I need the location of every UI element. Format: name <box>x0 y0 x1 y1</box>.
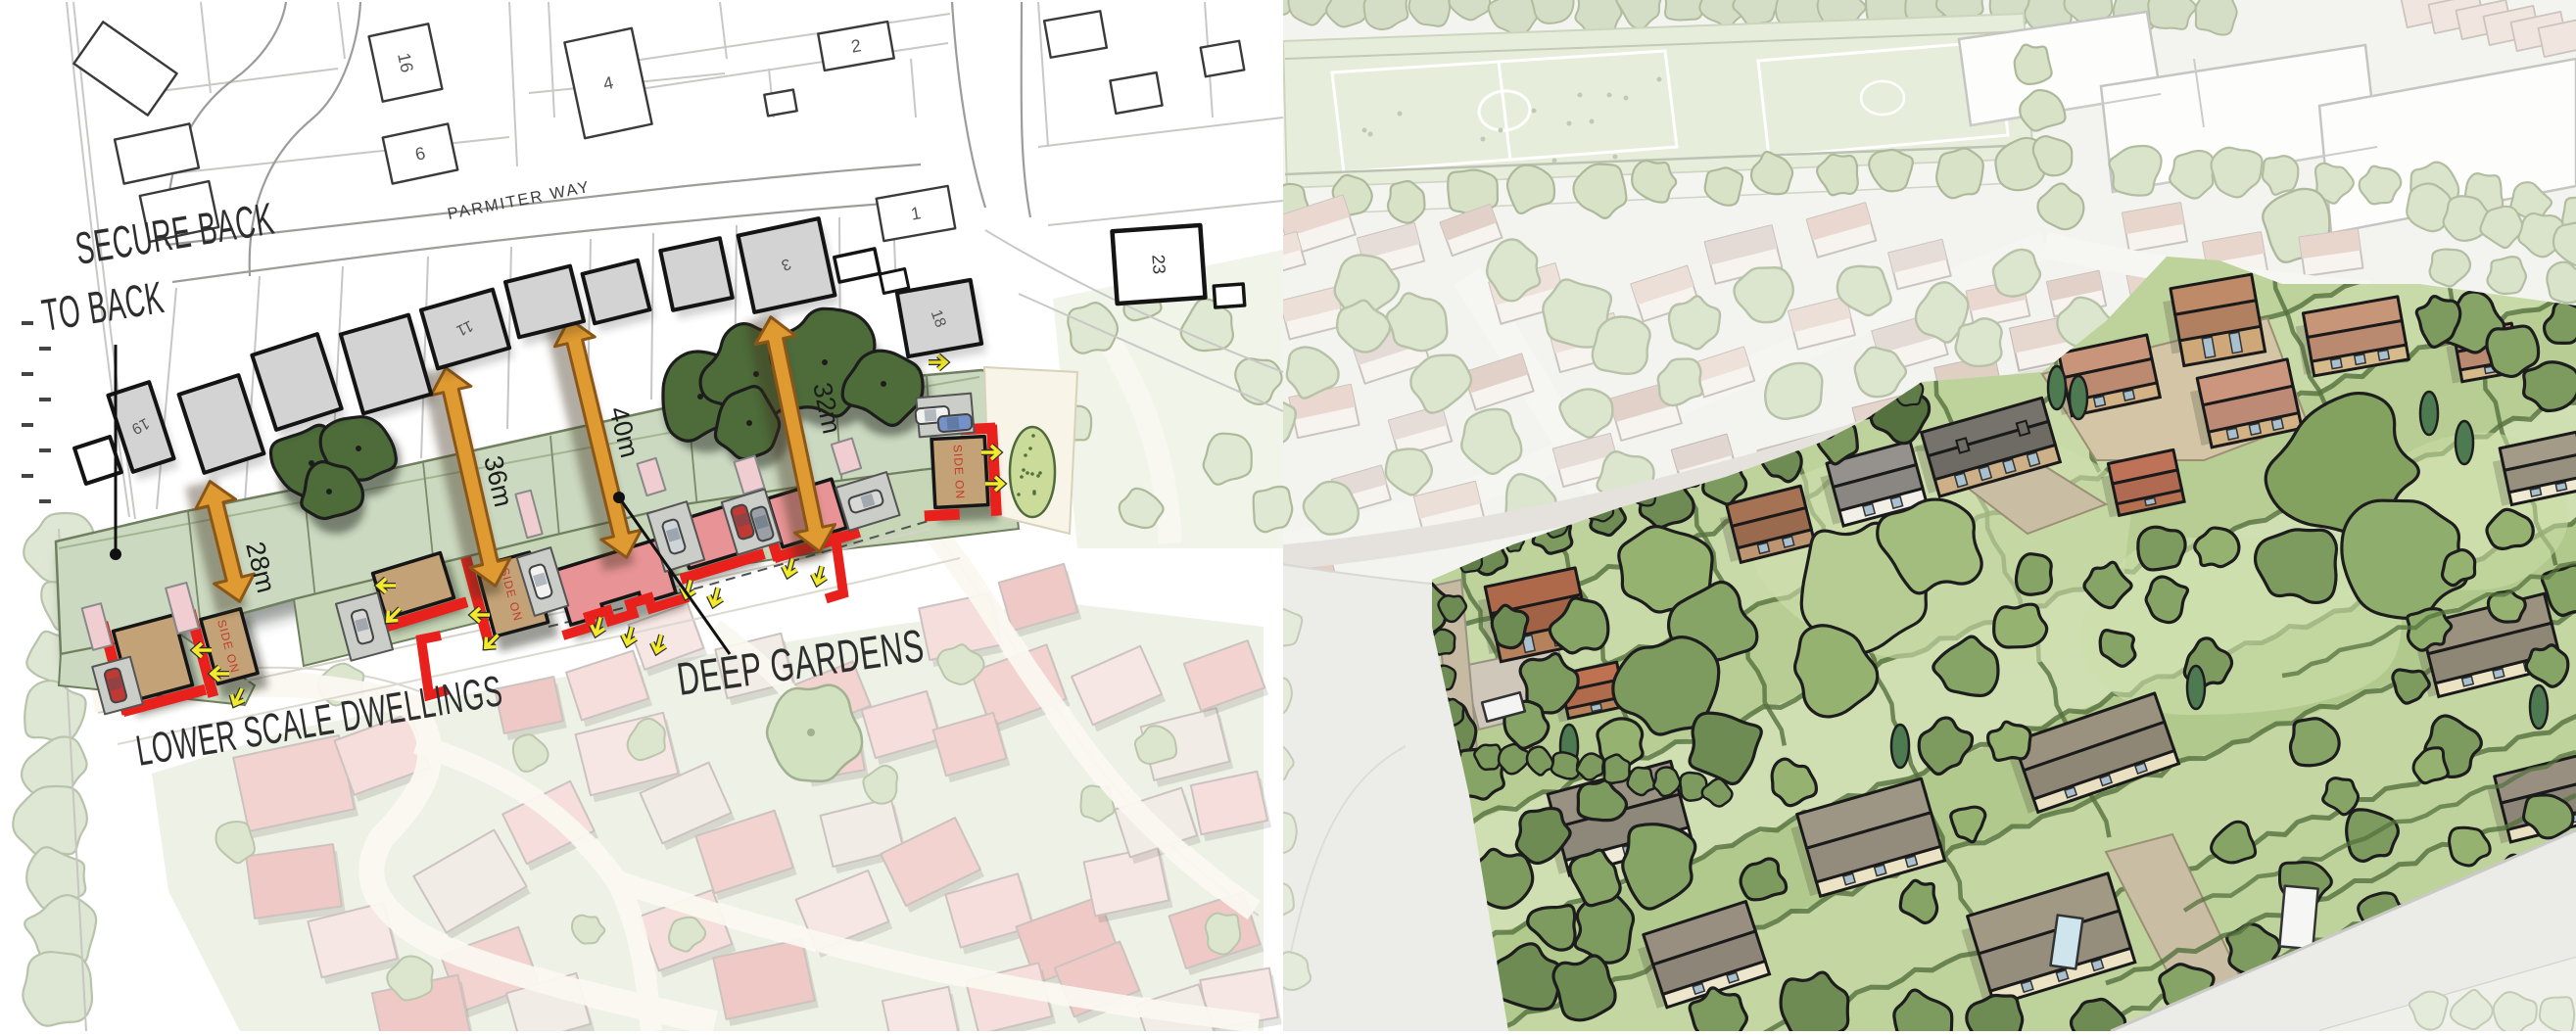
svg-text:23: 23 <box>1148 254 1169 274</box>
svg-text:SIDE ON: SIDE ON <box>951 445 968 500</box>
svg-text:16: 16 <box>394 51 417 74</box>
